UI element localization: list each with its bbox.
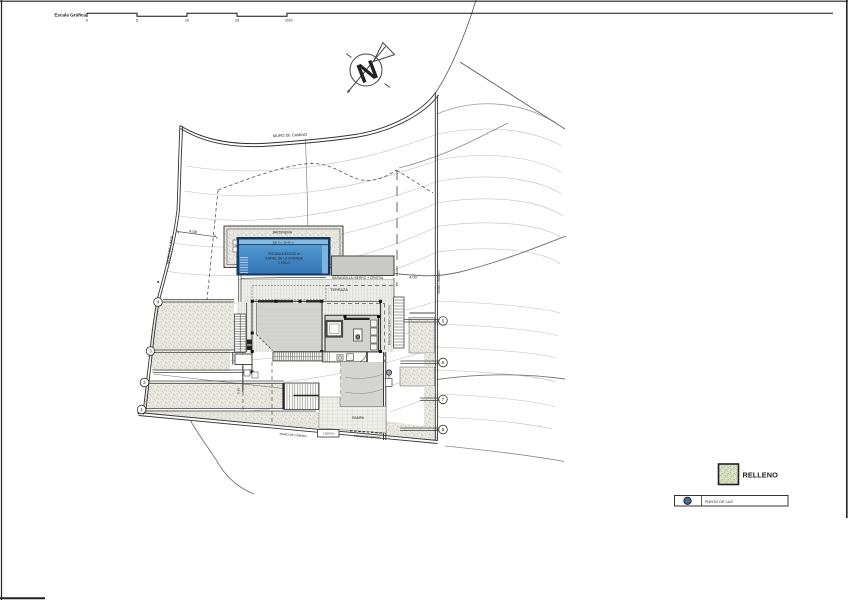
svg-text:RELLENO: RELLENO <box>743 471 779 480</box>
svg-text:0: 0 <box>86 19 88 23</box>
svg-text:1 BOX M: 1 BOX M <box>323 432 334 436</box>
svg-text:350 Tm: 35.45 m: 350 Tm: 35.45 m <box>272 240 294 244</box>
svg-text:5.36: 5.36 <box>237 388 241 394</box>
svg-text:4.00: 4.00 <box>409 275 418 280</box>
svg-text:Escala Gráfica: Escala Gráfica <box>54 13 86 18</box>
svg-text:MURO LINDERO: MURO LINDERO <box>437 270 441 294</box>
svg-text:A NIVEL DE LA VIVIENDA: A NIVEL DE LA VIVIENDA <box>265 257 303 261</box>
svg-text:BARANDILLA HIERRO + CRISTAL: BARANDILLA HIERRO + CRISTAL <box>332 276 384 280</box>
svg-text:BARANDILLA HIERRO + CRISTAL: BARANDILLA HIERRO + CRISTAL <box>388 304 392 345</box>
svg-text:4.00: 4.00 <box>189 229 198 235</box>
svg-text:5: 5 <box>136 19 138 23</box>
svg-text:10: 10 <box>185 19 189 23</box>
svg-text:20m: 20m <box>285 19 292 23</box>
svg-text:RAMPA: RAMPA <box>352 416 365 420</box>
svg-text:TERRAZA: TERRAZA <box>330 288 348 292</box>
svg-text:JARDINERA: JARDINERA <box>272 231 293 235</box>
svg-text:PISCINA 8.50X3.50 m: PISCINA 8.50X3.50 m <box>268 252 300 256</box>
svg-text:15: 15 <box>235 19 239 23</box>
svg-text:PUNTO DE LUZ: PUNTO DE LUZ <box>705 500 733 504</box>
svg-text:1 FOCO: 1 FOCO <box>278 261 290 265</box>
